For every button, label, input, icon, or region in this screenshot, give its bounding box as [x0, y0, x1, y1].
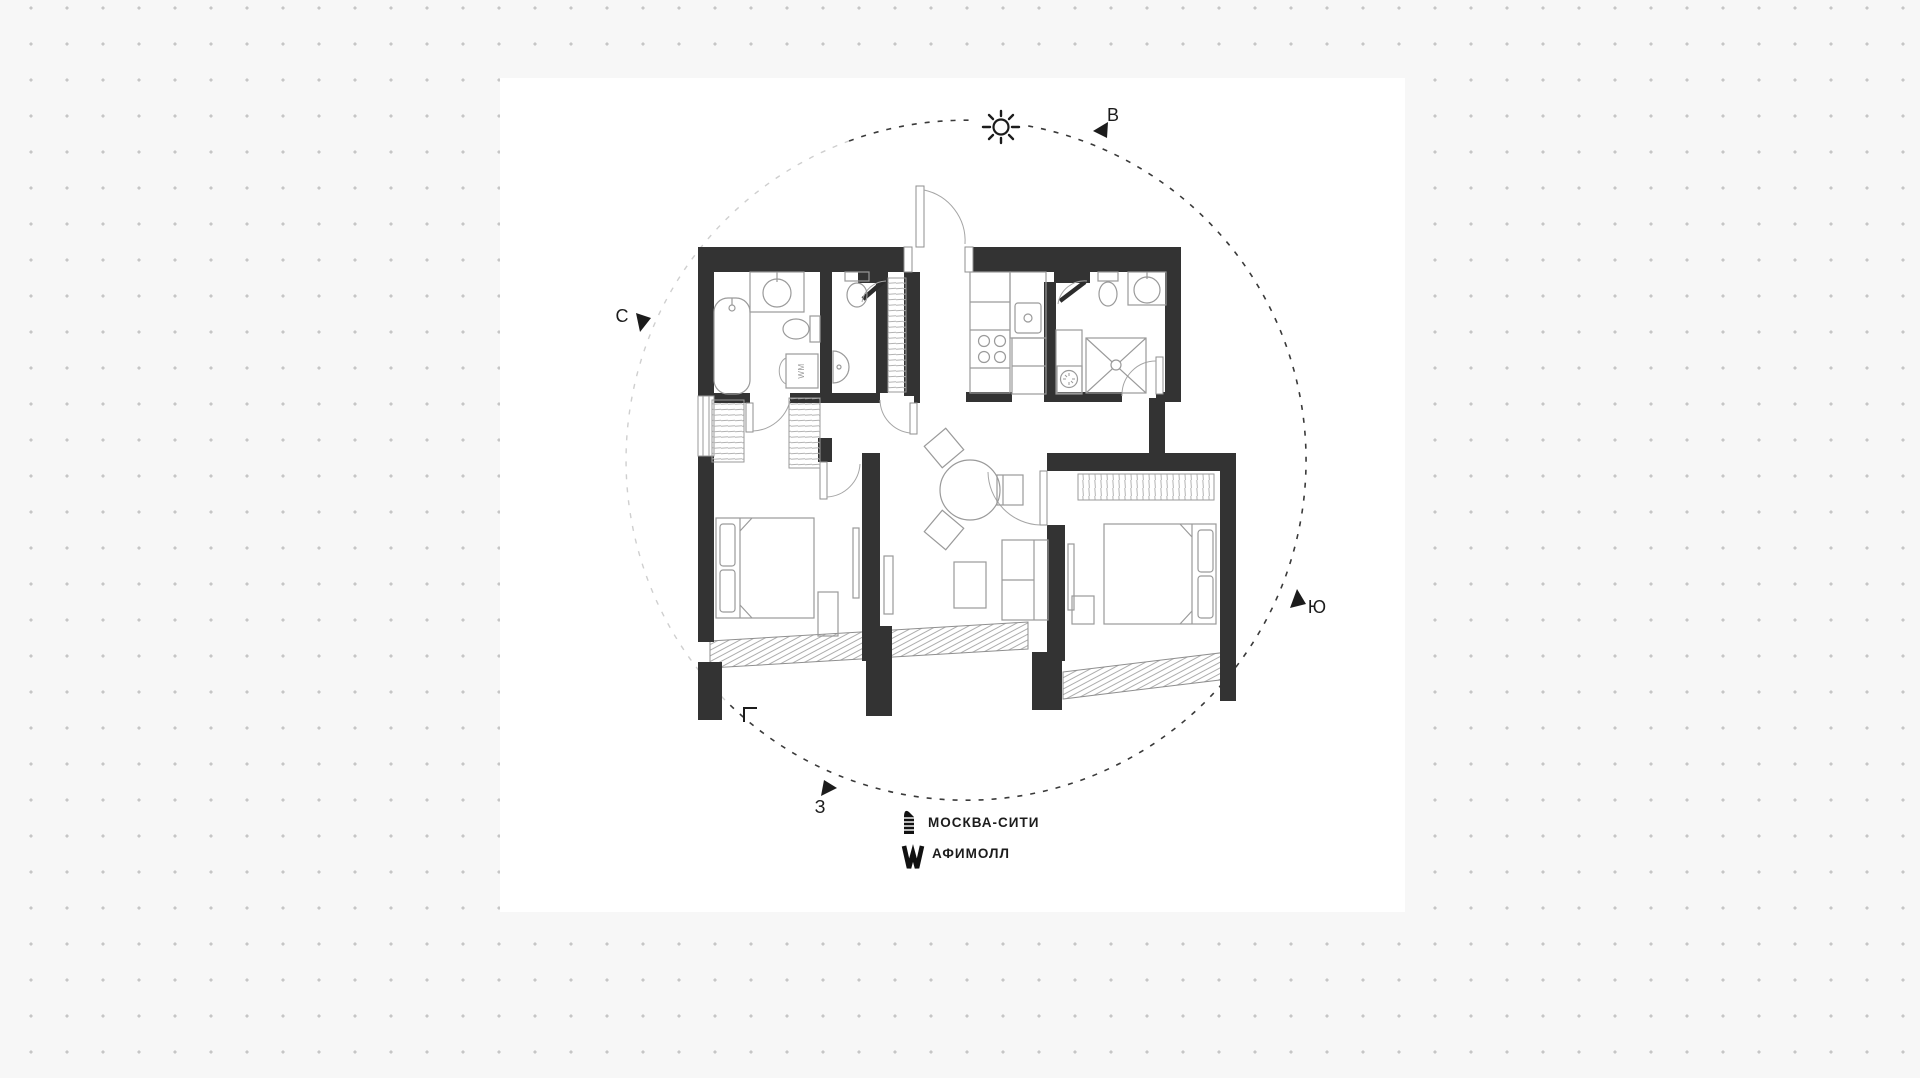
- shower-room-door: [1156, 357, 1163, 394]
- washing-machine-label: WM: [797, 363, 806, 378]
- compass-west-label: З: [815, 797, 826, 817]
- wardrobe-right-bedroom: [1078, 474, 1214, 500]
- compass-north-label: С: [616, 306, 629, 326]
- legend-afimall-label: АФИМОЛЛ: [932, 846, 1010, 861]
- paper-sheet: [500, 78, 1405, 912]
- compass-south-label: Ю: [1308, 597, 1326, 617]
- hall-door: [910, 403, 917, 434]
- sun-icon: [975, 101, 1027, 153]
- bedroom-right-door: [1040, 471, 1047, 525]
- wardrobe-left: [712, 400, 744, 462]
- entry-wardrobe: [888, 278, 906, 392]
- floor-plan-scene: С В Ю З: [0, 0, 1920, 1078]
- compass-east-label: В: [1107, 105, 1119, 125]
- bedroom-left-door: [820, 462, 827, 499]
- bathroom-door: [746, 403, 753, 432]
- bed-left: [716, 518, 814, 618]
- wardrobe-middle: [789, 398, 820, 468]
- legend-moscow-city-label: МОСКВА-СИТИ: [928, 815, 1039, 830]
- bed-right: [1104, 524, 1216, 624]
